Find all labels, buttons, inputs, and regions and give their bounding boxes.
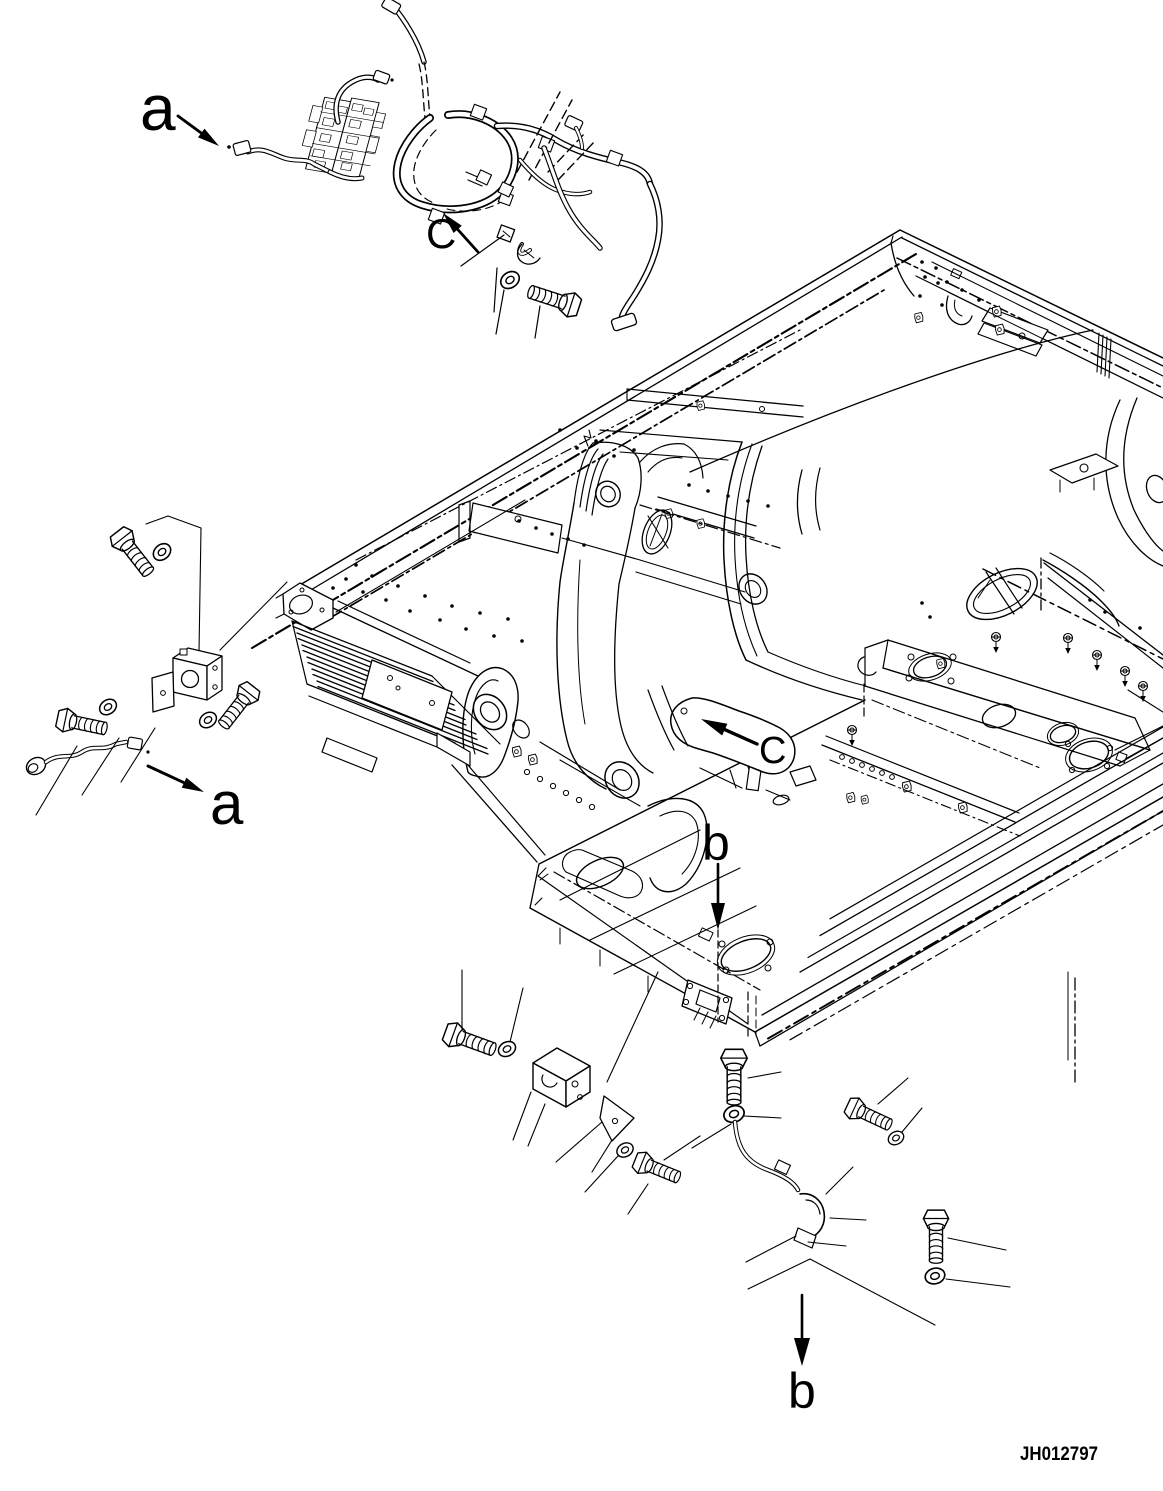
svg-text:b: b — [788, 1363, 816, 1419]
svg-text:b: b — [702, 815, 730, 871]
svg-text:JH012797: JH012797 — [1020, 1444, 1098, 1465]
svg-text:C: C — [426, 210, 456, 257]
svg-text:a: a — [210, 770, 244, 837]
svg-text:C: C — [759, 730, 786, 772]
svg-text:a: a — [140, 72, 176, 144]
